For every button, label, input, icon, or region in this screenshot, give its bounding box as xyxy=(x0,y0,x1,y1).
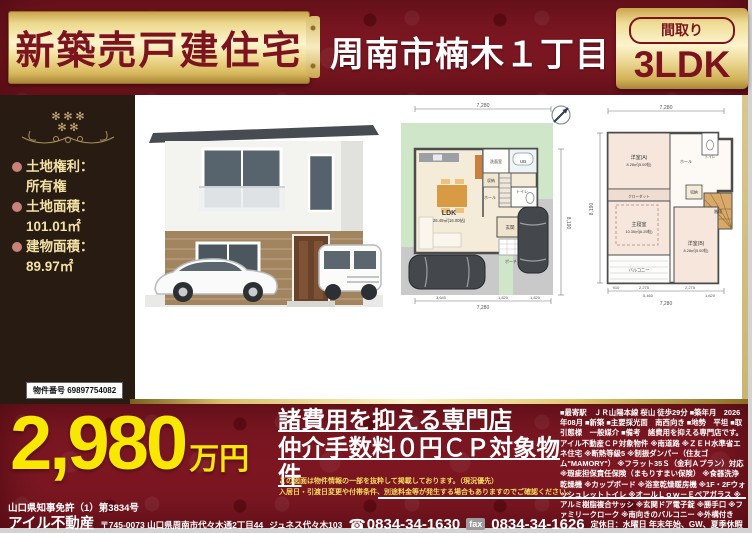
balcony-rail xyxy=(199,187,285,211)
svg-text:トイレ: トイレ xyxy=(705,155,716,159)
svg-text:3,640: 3,640 xyxy=(436,295,447,300)
footer-separator xyxy=(378,497,746,499)
property-number: 物件番号 69897754082 xyxy=(26,382,123,399)
flyer-title: 新築売戸建住宅 xyxy=(15,20,302,76)
gold-edge-strip xyxy=(742,95,748,404)
spec-land-rights: 土地権利： 所有権 xyxy=(12,157,127,196)
phone-number: ☎0834-34-1630 xyxy=(348,516,460,533)
svg-text:8,190: 8,190 xyxy=(565,217,571,230)
svg-text:5,460: 5,460 xyxy=(643,293,654,298)
svg-text:8.28㎡(5.00帖): 8.28㎡(5.00帖) xyxy=(627,162,653,167)
svg-text:8,190: 8,190 xyxy=(589,203,595,216)
madori-value: 3LDK xyxy=(616,45,748,86)
svg-text:8.28㎡(5.00帖): 8.28㎡(5.00帖) xyxy=(684,248,710,253)
property-location: 周南市楠木１丁目 xyxy=(330,27,610,76)
spec-sidebar: ✻✻✻ ✻✻ 土地権利： 所有権 土地面積： 101.01㎡ 建物面積： 89.… xyxy=(0,95,135,404)
phone-icon: ☎ xyxy=(348,516,365,532)
svg-text:玄関: 玄関 xyxy=(506,224,515,231)
price-unit: 万円 xyxy=(189,443,249,476)
svg-text:階段: 階段 xyxy=(714,208,722,214)
svg-text:ポーチ: ポーチ xyxy=(505,258,517,264)
price-band: 2,980万円 諸費用を抑える専門店 仲介手数料０円ＣＰ対象物件 この図面は物件… xyxy=(0,404,748,528)
svg-text:収納: 収納 xyxy=(690,190,698,195)
room-a xyxy=(608,133,670,189)
svg-text:7,280: 7,280 xyxy=(660,105,673,111)
price-amount: 2,980 xyxy=(10,401,185,486)
svg-text:1,820: 1,820 xyxy=(498,295,509,300)
bullet-icon xyxy=(12,242,22,252)
holidays-note: 定休日：水曜日 年末年始、GW、夏季休暇 xyxy=(591,519,743,533)
cupboard xyxy=(475,155,482,179)
porch-step xyxy=(287,301,335,307)
header-band: 新築売戸建住宅 周南市楠木１丁目 間取り 3LDK xyxy=(0,0,748,95)
svg-text:1,820: 1,820 xyxy=(705,293,716,298)
toilet-fixture xyxy=(526,193,534,204)
fax-badge: fax xyxy=(466,518,485,530)
small-window xyxy=(309,155,333,211)
svg-text:7,280: 7,280 xyxy=(477,103,490,109)
svg-text:10.35㎡(6.25帖): 10.35㎡(6.25帖) xyxy=(625,229,653,234)
ribbon-curl-ornament xyxy=(306,16,320,78)
svg-text:収納: 収納 xyxy=(487,177,495,183)
spec-land-area: 土地面積： 101.01㎡ xyxy=(12,197,127,236)
house-exterior-render xyxy=(141,99,387,311)
floorplan-2f: 洋室(A) 8.28㎡(5.00帖) クローゼット ホール トイレ 収納 階段 … xyxy=(578,99,746,311)
svg-text:ホール: ホール xyxy=(484,195,496,200)
svg-text:2,275: 2,275 xyxy=(639,285,650,290)
svg-text:910: 910 xyxy=(613,285,620,290)
svg-text:洋室(A): 洋室(A) xyxy=(631,154,648,161)
van-car xyxy=(319,245,381,300)
property-features: ■最寄駅 ＪＲ山陽本線 桜山 徒歩29分 ■築年月 2026年08月 ■新築 ■… xyxy=(560,408,746,520)
flyer: 新築売戸建住宅 周南市楠木１丁目 間取り 3LDK ✻✻✻ ✻✻ 土地権利： 所… xyxy=(0,0,748,528)
bullet-icon xyxy=(12,162,22,172)
svg-text:洗面室: 洗面室 xyxy=(490,158,502,164)
spec-building-area: 建物面積： 89.97㎡ xyxy=(12,237,127,276)
plan-car-bottom xyxy=(409,255,485,289)
spec-list: 土地権利： 所有権 土地面積： 101.01㎡ 建物面積： 89.97㎡ xyxy=(0,157,135,276)
title-ribbon: 新築売戸建住宅 xyxy=(8,11,310,84)
floorplan-1f: LDK 26.49㎡(16.00帖) 洗面室 UB トイレ 収納 ホール 玄関 … xyxy=(389,99,577,311)
svg-text:26.49㎡(16.00帖): 26.49㎡(16.00帖) xyxy=(433,217,466,224)
company-address: 〒745-0073 山口県周南市代々木通2丁目44 xyxy=(100,519,263,533)
svg-text:LDK: LDK xyxy=(442,210,456,217)
bullet-icon xyxy=(12,202,22,212)
svg-text:✻: ✻ xyxy=(69,122,78,134)
svg-text:UB: UB xyxy=(520,159,526,164)
svg-text:✻: ✻ xyxy=(57,122,66,134)
plan-car-right xyxy=(518,207,548,273)
content-area: LDK 26.49㎡(16.00帖) 洗面室 UB トイレ 収納 ホール 玄関 … xyxy=(135,95,748,404)
svg-text:2,275: 2,275 xyxy=(685,285,696,290)
svg-text:トイレ: トイレ xyxy=(516,189,528,194)
svg-text:洋室(B): 洋室(B) xyxy=(688,240,705,247)
svg-text:7,280: 7,280 xyxy=(477,305,490,311)
company-name: アイル不動産 xyxy=(8,512,94,533)
company-address2: ジュネス代々木103 xyxy=(269,519,342,533)
promo-headline-line1: 諸費用を抑える専門店 xyxy=(278,407,572,435)
madori-label: 間取り xyxy=(629,17,735,44)
company-info: アイル不動産 〒745-0073 山口県周南市代々木通2丁目44 ジュネス代々木… xyxy=(8,512,748,533)
svg-text:バルコニー: バルコニー xyxy=(629,268,650,273)
svg-text:クローゼット: クローゼット xyxy=(628,194,650,199)
fax-number: 0834-34-1626 xyxy=(491,516,584,533)
svg-text:主寝室: 主寝室 xyxy=(631,221,646,228)
svg-text:1,820: 1,820 xyxy=(530,295,541,300)
svg-text:ホール: ホール xyxy=(680,159,692,164)
floorplan-type-box: 間取り 3LDK xyxy=(616,8,748,89)
flourish-ornament: ✻✻✻ ✻✻ xyxy=(16,107,120,151)
promo-disclaimer: この図面は物件情報の一部を抜粋して掲載しております。（現況優先） 入居日・引渡日… xyxy=(279,477,573,498)
dining-table xyxy=(437,185,467,207)
price: 2,980万円 xyxy=(10,404,249,484)
svg-text:7,280: 7,280 xyxy=(660,301,673,307)
master-bedroom xyxy=(608,201,670,255)
sofa xyxy=(419,217,433,249)
